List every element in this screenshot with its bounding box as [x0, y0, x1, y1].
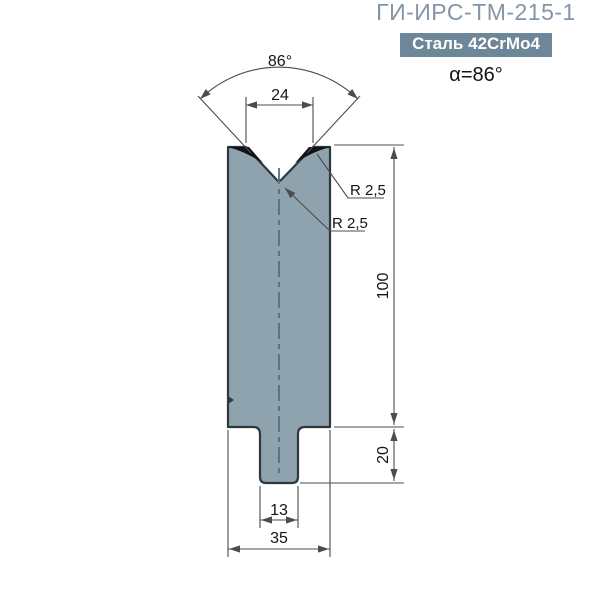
catalog-drawing-page: 86° 24 R 2,5 R 2,5 10 — [0, 0, 600, 600]
die-technical-drawing: 86° 24 R 2,5 R 2,5 10 — [0, 0, 600, 600]
product-title: ГИ-ИРС-ТМ-215-1 — [376, 1, 576, 24]
die-height-value: 100 — [375, 273, 392, 300]
base-width-value: 35 — [270, 530, 288, 547]
base-height-value: 20 — [375, 446, 392, 464]
dim-vee-opening: 24 — [246, 87, 313, 143]
material-badge: Сталь 42CrMo4 — [400, 33, 552, 57]
dim-tang-width: 13 — [260, 486, 298, 528]
shoulder-radius-value: R 2,5 — [350, 182, 386, 199]
tang-width-value: 13 — [270, 502, 288, 519]
vee-angle-value: 86° — [268, 53, 292, 70]
dim-base-height: 20 — [300, 429, 404, 483]
tip-radius-value: R 2,5 — [332, 215, 368, 232]
vee-opening-value: 24 — [271, 87, 289, 104]
header: ГИ-ИРС-ТМ-215-1 Сталь 42CrMo4 α=86° — [348, 1, 600, 87]
angle-label: α=86° — [449, 64, 503, 87]
